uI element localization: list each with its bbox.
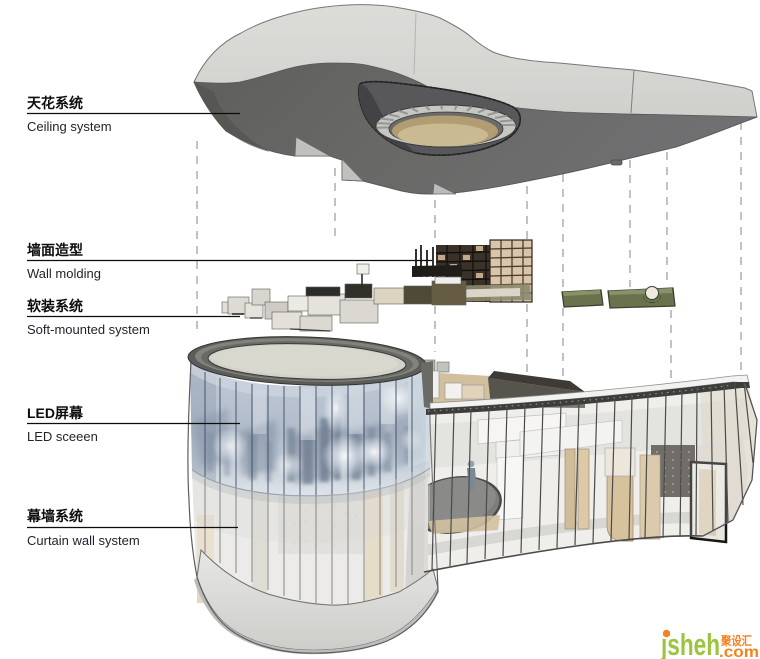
svg-text:Curtain wall system: Curtain wall system — [27, 533, 140, 548]
svg-text:Soft-mounted system: Soft-mounted system — [27, 322, 150, 337]
svg-text:软装系统: 软装系统 — [27, 298, 83, 314]
svg-text:LED sceeen: LED sceeen — [27, 429, 98, 444]
svg-text:幕墙系统: 幕墙系统 — [26, 508, 83, 524]
svg-text:LED屏幕: LED屏幕 — [27, 405, 84, 421]
svg-text:Ceiling system: Ceiling system — [27, 119, 112, 134]
svg-text:Wall molding: Wall molding — [27, 266, 101, 281]
svg-text:.com: .com — [719, 644, 759, 659]
svg-text:天花系统: 天花系统 — [27, 95, 83, 111]
svg-text:墙面造型: 墙面造型 — [27, 242, 83, 258]
